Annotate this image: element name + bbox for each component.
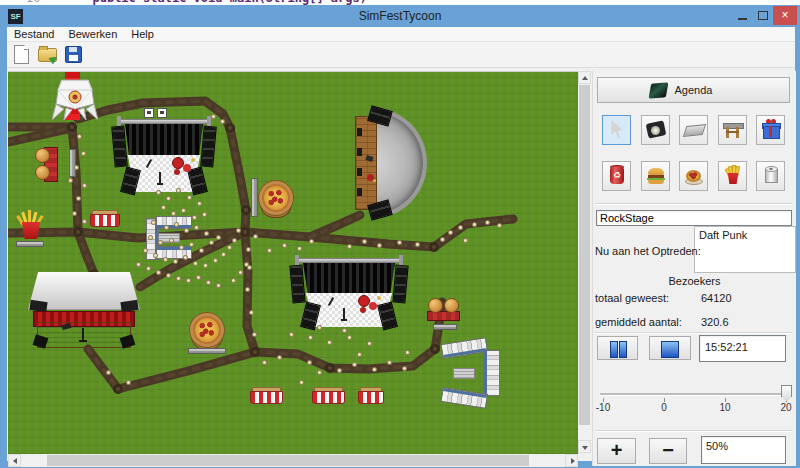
map-structure-pizza[interactable] [258, 180, 294, 220]
up-arrow-icon [582, 76, 588, 80]
map-decor [483, 350, 500, 396]
minimize-button[interactable] [733, 6, 752, 25]
visitor-dot [196, 275, 201, 280]
map-decor [37, 322, 131, 348]
visitor-dot [161, 205, 166, 210]
map-decor [440, 337, 488, 359]
burger-icon [642, 162, 670, 190]
visitor-dot [253, 234, 258, 239]
map-decor [726, 131, 739, 133]
pause-icon [619, 341, 627, 358]
visitor-dot [216, 235, 221, 240]
visitor-dot [377, 243, 382, 248]
visitor-dot [143, 248, 148, 253]
map-decor [444, 298, 459, 313]
visitor-dot [183, 255, 188, 260]
menu-item-bewerken[interactable]: Bewerken [61, 27, 124, 41]
map-decor [70, 125, 74, 129]
visitor-dot [184, 228, 189, 233]
map-decor [157, 108, 167, 118]
visitor-dot [82, 183, 87, 188]
visitor-dot [216, 283, 221, 288]
map-structure-striped[interactable] [250, 387, 283, 404]
map-decor [440, 387, 488, 409]
slider-tick-label: 0 [661, 402, 667, 413]
visitor-dot [148, 235, 153, 240]
visitor-dot [307, 360, 312, 365]
visitor-dot [197, 201, 202, 206]
map-structure-bench-h[interactable] [188, 348, 226, 354]
map-decor [144, 108, 154, 118]
visitor-dot [186, 278, 191, 283]
scroll-up-button[interactable] [578, 71, 591, 84]
scroll-down-button[interactable] [578, 440, 591, 453]
visitor-dot [357, 352, 362, 357]
map-decor [79, 340, 87, 342]
pause-icon [610, 341, 618, 358]
map-structure-stage[interactable] [113, 116, 215, 194]
slider-tick-label: -10 [596, 402, 610, 413]
horizontal-scroll-thumb[interactable] [47, 455, 529, 466]
map-decor [610, 120, 624, 139]
window-title: SimFestTycoon [0, 5, 800, 27]
visitor-dot [309, 239, 314, 244]
visitor-dot [308, 335, 313, 340]
visitor-dot [267, 248, 272, 253]
map-decor [433, 347, 437, 351]
visitor-dot [211, 114, 216, 119]
clock-display: 15:52:21 [699, 335, 786, 362]
visitors-header: Bezoekers [593, 275, 796, 287]
visitor-dot [156, 190, 161, 195]
visitor-dot [189, 242, 194, 247]
visitor-dot [463, 238, 468, 243]
map-decor [78, 108, 86, 120]
visitor-dot [179, 245, 184, 250]
map-structure-toilets-c[interactable] [441, 337, 501, 409]
save-file-button[interactable] [63, 44, 83, 64]
map-decor [328, 366, 332, 370]
map-decor [86, 104, 98, 120]
visitor-dot [458, 225, 463, 230]
visitor-dot [192, 215, 197, 220]
maximize-icon [758, 11, 768, 20]
map-decor [312, 391, 345, 404]
separator [595, 203, 792, 205]
map-decor [453, 368, 475, 379]
slider-tick-label: 10 [719, 402, 730, 413]
visitor-dot [227, 245, 232, 250]
map-structure-bench-h[interactable] [16, 241, 44, 247]
visitor-dot [194, 225, 199, 230]
map-decor [159, 172, 161, 183]
visitor-dot [221, 252, 226, 257]
visitor-dot [176, 188, 181, 193]
map-decor [357, 168, 362, 176]
map-decor [686, 170, 701, 182]
map-decor [116, 387, 120, 391]
agenda-button[interactable]: Agenda [597, 77, 790, 103]
map-structure-striped[interactable] [312, 387, 345, 404]
map-decor [253, 350, 257, 354]
right-arrow-icon [571, 458, 575, 464]
visitor-dot [164, 225, 169, 230]
map-decor [228, 126, 232, 130]
now-performing-label: Nu aan het Optreden: [595, 245, 701, 257]
visitor-dot [497, 223, 502, 228]
map-decor [251, 178, 258, 217]
menu-item-bestand[interactable]: Bestand [7, 27, 61, 41]
map-structure-bench-h[interactable] [433, 324, 457, 330]
visitor-dot [81, 151, 86, 156]
visitor-dot [153, 253, 158, 258]
map-decor [73, 95, 78, 100]
map-decor [343, 308, 345, 319]
agenda-label: Agenda [675, 84, 713, 96]
visitor-dot [236, 228, 241, 233]
open-file-button[interactable] [37, 44, 57, 64]
map-horizontal-scrollbar[interactable] [8, 454, 578, 467]
map-decor [648, 180, 664, 184]
map-decor [683, 124, 707, 137]
map-decor [119, 119, 209, 124]
map-structure-tent[interactable] [52, 78, 98, 122]
map-decor: ♻ [610, 167, 624, 184]
tool-button-trash-can[interactable]: ♻ [602, 161, 631, 191]
zoom-level-box: 50% [701, 436, 786, 464]
visitor-dot [166, 196, 171, 201]
visitor-dot [106, 370, 111, 375]
map-structure-striped[interactable] [358, 387, 384, 404]
clock-value: 15:52:21 [705, 341, 748, 353]
visitor-dot [193, 261, 198, 266]
visitor-dot [252, 332, 257, 337]
scroll-left-button[interactable] [8, 454, 21, 467]
map-decor [303, 263, 395, 293]
visitor-dot [347, 244, 352, 249]
map-structure-burger-h[interactable] [427, 298, 460, 322]
map-decor [358, 391, 384, 404]
map-decor [147, 111, 151, 114]
visitor-dot [249, 310, 254, 315]
map-structure-pizza[interactable] [189, 312, 227, 352]
maximize-button[interactable] [753, 6, 772, 25]
visitor-dot [232, 238, 237, 243]
visitor-dot [204, 231, 209, 236]
visitor-dot [171, 211, 176, 216]
visitor-dot [337, 368, 342, 373]
visitor-dot [187, 195, 192, 200]
fries-icon [719, 162, 747, 190]
map-decor [357, 188, 362, 196]
map-decor [19, 222, 43, 239]
visitor-dot [169, 238, 174, 243]
map-decor [244, 208, 248, 212]
festival-map[interactable] [8, 71, 578, 454]
visitor-dot [327, 340, 332, 345]
visitor-dot [387, 360, 392, 365]
visitor-dot [213, 258, 218, 263]
visitor-dot [352, 362, 357, 367]
visitor-dot [163, 257, 168, 262]
map-decor [341, 319, 347, 321]
visitor-dot [317, 370, 322, 375]
menu-bar: BestandBewerkenHelp [7, 27, 795, 42]
visitor-dot [448, 230, 453, 235]
map-decor [432, 245, 436, 249]
map-structure-bench-v[interactable] [251, 178, 258, 217]
map-decor [651, 126, 660, 135]
visitor-dot [220, 119, 225, 124]
map-vertical-scrollbar[interactable] [578, 71, 591, 453]
new-file-button[interactable] [11, 44, 31, 64]
map-decor [120, 334, 136, 348]
speed-slider-track[interactable] [600, 393, 792, 396]
visitor-dot [367, 341, 372, 346]
visitor-dot [68, 178, 73, 183]
stage-light-icon [642, 116, 670, 144]
visitor-dot [246, 247, 251, 252]
open-file-icon [38, 48, 57, 62]
toolbar [7, 42, 795, 68]
visitor-dot [203, 263, 208, 268]
visitor-dot [299, 380, 304, 385]
map-decor [52, 104, 64, 120]
zoom-in-button[interactable]: + [597, 438, 636, 464]
map-decor [125, 124, 203, 155]
total-visitors-label: totaal geweest: [595, 292, 669, 304]
visitor-dot [485, 220, 490, 225]
map-decor [250, 391, 283, 404]
map-structure-bench-v[interactable] [69, 149, 76, 177]
visitor-dot [372, 367, 377, 372]
save-file-icon [65, 46, 82, 63]
map-decor [35, 165, 50, 180]
tool-button-path-tile[interactable] [679, 115, 708, 145]
menu-item-help[interactable]: Help [124, 27, 161, 41]
vertical-scroll-thumb[interactable] [579, 85, 590, 425]
left-arrow-icon [13, 458, 17, 464]
map-decor [769, 126, 772, 137]
map-decor [358, 295, 370, 307]
map-decor [769, 168, 773, 170]
scroll-right-button[interactable] [565, 454, 578, 467]
visitor-dot [362, 239, 367, 244]
visitor-dot [289, 332, 294, 337]
map-structure-fries[interactable] [13, 212, 49, 240]
separator [595, 332, 792, 334]
map-decor [160, 111, 164, 114]
tool-button-select-cursor[interactable] [602, 115, 631, 145]
separator [595, 430, 792, 432]
visitor-dot [146, 266, 151, 271]
app-window: SF SimFestTycoon × BestandBewerkenHelp [0, 5, 800, 468]
stop-icon [661, 341, 679, 358]
slider-tick-label: 20 [780, 402, 791, 413]
visitor-dot [158, 240, 163, 245]
tool-button-stage-truss[interactable] [718, 115, 747, 145]
visitor-dot [77, 134, 82, 139]
visitor-dot [247, 265, 252, 270]
map-decor [367, 174, 374, 181]
tool-button-pizza[interactable] [679, 161, 708, 191]
visitor-dot [199, 248, 204, 253]
agenda-book-icon [649, 82, 669, 98]
visitor-dot [72, 211, 77, 216]
map-structure-burger-v[interactable] [35, 147, 61, 182]
select-cursor-icon [603, 116, 631, 144]
tool-button-toilet-roll[interactable] [756, 161, 785, 191]
stage-name-input[interactable] [596, 210, 792, 226]
map-structure-amphitheater[interactable] [355, 108, 427, 218]
visitor-dot [136, 262, 141, 267]
visitor-dot [277, 355, 282, 360]
map-decor [64, 108, 72, 120]
visitor-dot [238, 270, 243, 275]
visitor-dot [402, 366, 407, 371]
map-decor [157, 183, 163, 185]
map-decor [440, 337, 488, 359]
speed-slider-thumb[interactable] [781, 385, 792, 402]
visitor-dot [231, 278, 236, 283]
visitor-dot [82, 219, 87, 224]
map-decor [111, 126, 128, 168]
map-decor [90, 214, 120, 227]
map-decor [172, 157, 184, 169]
visitor-dot [156, 270, 161, 275]
tool-button-burger[interactable] [641, 161, 670, 191]
pizza-icon [680, 162, 708, 190]
trash-can-icon: ♻ [603, 162, 631, 190]
down-arrow-icon [582, 446, 588, 450]
visitor-dot [206, 280, 211, 285]
new-file-icon [14, 45, 29, 64]
average-visitors-value: 320.6 [701, 316, 729, 328]
zoom-level-value: 50% [706, 440, 728, 452]
map-decor [35, 148, 50, 163]
visitor-dot [415, 242, 420, 247]
visitor-dot [245, 287, 250, 292]
map-structure-striped[interactable] [90, 210, 120, 227]
visitor-dot [176, 276, 181, 281]
tool-button-stage-light[interactable] [641, 115, 670, 145]
visitor-dot [202, 212, 207, 217]
map-decor [16, 241, 44, 247]
map-decor [243, 230, 247, 234]
map-decor [440, 387, 488, 409]
visitor-dot [397, 240, 402, 245]
visitor-dot [166, 273, 171, 278]
map-structure-stage[interactable] [291, 255, 407, 329]
visitor-dot [126, 380, 131, 385]
stage-truss-icon [719, 116, 747, 144]
visitor-dot [440, 237, 445, 242]
visitor-dot [472, 222, 477, 227]
map-decor [245, 232, 434, 247]
tool-button-gift[interactable] [756, 115, 785, 145]
visitor-dot [74, 165, 79, 170]
tool-button-fries[interactable] [718, 161, 747, 191]
visitor-dot [262, 360, 267, 365]
map-decor [193, 316, 221, 344]
control-panel: Agenda ♻ Daft Punk Nu aan het Optreden: … [592, 71, 796, 466]
average-visitors-label: gemiddeld aantal: [595, 316, 682, 328]
visitor-dot [297, 246, 302, 251]
map-decor [392, 265, 408, 304]
visitor-dot [347, 335, 352, 340]
map-decor [262, 184, 290, 212]
toilet-roll-icon [757, 162, 785, 190]
total-visitors-value: 64120 [701, 292, 732, 304]
map-decor [188, 348, 226, 354]
map-structure-barn[interactable] [28, 272, 140, 350]
map-decor [648, 168, 664, 175]
map-decor [357, 128, 362, 136]
map-decor [69, 149, 76, 177]
pause-button[interactable] [597, 336, 638, 360]
map-decor [82, 328, 84, 340]
stop-button[interactable] [649, 336, 691, 360]
visitor-dot [151, 220, 156, 225]
visitor-dot [317, 325, 322, 330]
visitor-dot [342, 328, 347, 333]
map-decor [428, 298, 443, 313]
window-client-area: BestandBewerkenHelp Agenda [7, 27, 795, 461]
map-decor [297, 258, 401, 263]
now-performing-box: Daft Punk [694, 226, 796, 273]
path-tile-icon [680, 116, 708, 144]
map-decor [28, 210, 31, 222]
gift-icon [757, 116, 785, 144]
map-decor [433, 324, 457, 330]
visitor-dot [209, 240, 214, 245]
map-decor [76, 230, 80, 234]
title-bar[interactable]: SF SimFestTycoon × [0, 5, 800, 27]
visitor-dot [76, 196, 81, 201]
visitor-dot [282, 243, 287, 248]
visitor-dot [181, 208, 186, 213]
minimize-icon [738, 18, 747, 20]
visitor-dot [405, 350, 410, 355]
close-button[interactable]: × [773, 6, 797, 25]
zoom-out-button[interactable]: − [649, 438, 687, 464]
map-decor [357, 148, 362, 156]
visitor-dot [173, 259, 178, 264]
visitor-dot [174, 222, 179, 227]
map-decor [200, 126, 217, 168]
map-decor [289, 265, 305, 304]
now-performing-value: Daft Punk [699, 229, 747, 241]
